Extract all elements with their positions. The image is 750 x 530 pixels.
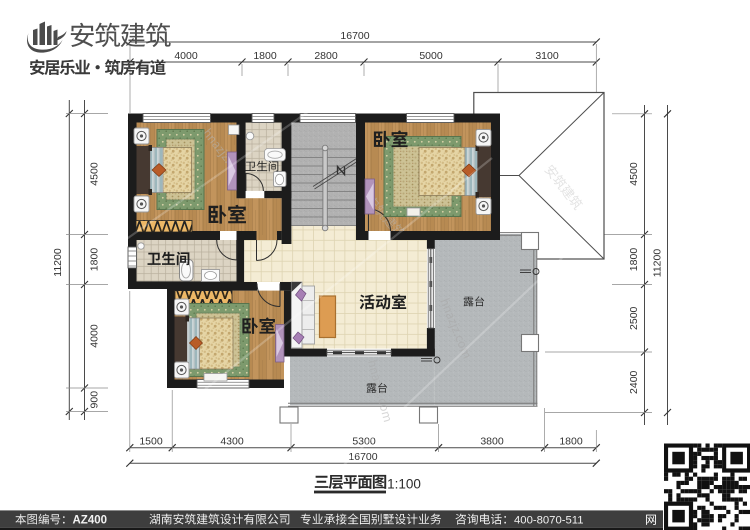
- svg-text:2500: 2500: [628, 306, 640, 330]
- svg-text:1:100: 1:100: [387, 477, 421, 492]
- svg-text:2400: 2400: [628, 370, 640, 394]
- svg-text:3800: 3800: [480, 436, 504, 448]
- svg-text:1800: 1800: [628, 248, 640, 272]
- svg-text:4300: 4300: [220, 436, 244, 448]
- svg-text:11200: 11200: [652, 249, 664, 278]
- svg-text:1800: 1800: [253, 50, 277, 62]
- svg-text:1800: 1800: [559, 436, 583, 448]
- svg-text:11200: 11200: [52, 248, 64, 277]
- svg-text:16700: 16700: [340, 30, 369, 42]
- svg-text:AZ400: AZ400: [73, 514, 108, 526]
- svg-text:4500: 4500: [89, 162, 101, 186]
- svg-text:3100: 3100: [535, 50, 559, 62]
- svg-text:1500: 1500: [139, 436, 163, 448]
- svg-text:4000: 4000: [174, 50, 198, 62]
- svg-text:2800: 2800: [314, 50, 338, 62]
- svg-text:1800: 1800: [89, 248, 101, 272]
- svg-text:4000: 4000: [89, 324, 101, 348]
- svg-text:5000: 5000: [419, 50, 443, 62]
- svg-text:400-8070-511: 400-8070-511: [514, 514, 584, 526]
- svg-text:900: 900: [89, 391, 101, 409]
- svg-text:4500: 4500: [628, 162, 640, 186]
